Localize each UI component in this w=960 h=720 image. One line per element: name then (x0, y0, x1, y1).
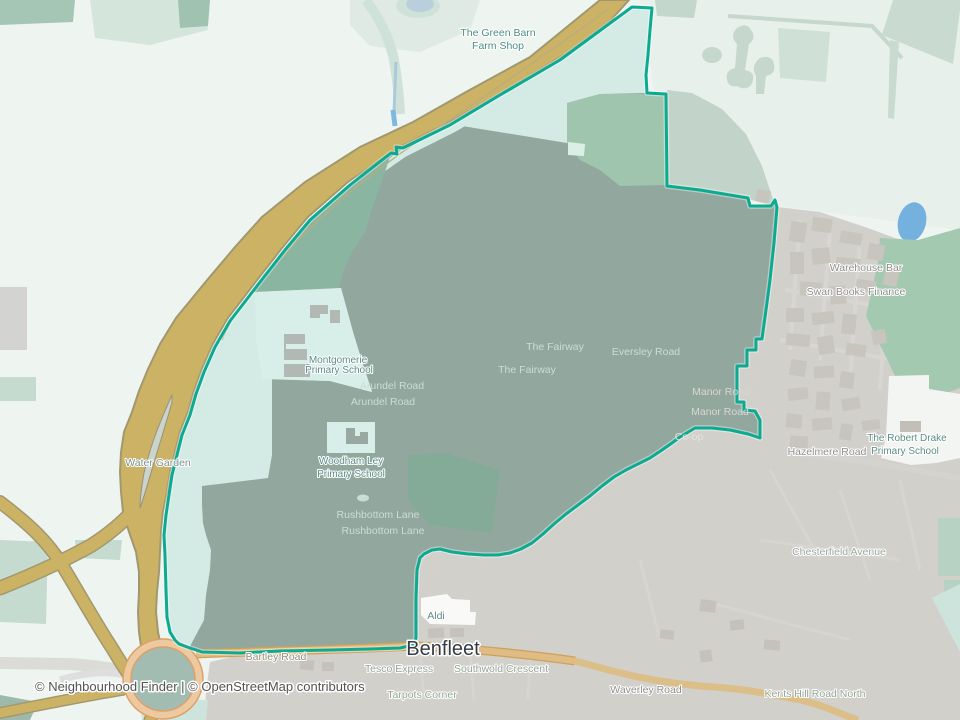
svg-text:Primary School: Primary School (305, 365, 373, 376)
svg-text:Warehouse Bar: Warehouse Bar (830, 262, 903, 274)
svg-text:Woodham Ley: Woodham Ley (319, 456, 383, 467)
svg-text:The Green Barn: The Green Barn (460, 27, 535, 39)
svg-text:Tesco Express: Tesco Express (365, 663, 433, 675)
svg-text:The Fairway: The Fairway (526, 341, 585, 353)
svg-text:Water Garden: Water Garden (125, 457, 191, 469)
svg-text:Farm Shop: Farm Shop (472, 40, 524, 52)
svg-text:Waverley Road: Waverley Road (610, 684, 682, 696)
svg-text:The Fairway: The Fairway (498, 364, 557, 376)
svg-text:© Neighbourhood Finder | © Ope: © Neighbourhood Finder | © OpenStreetMap… (35, 679, 365, 694)
svg-text:Benfleet: Benfleet (406, 638, 480, 660)
svg-text:Arundel Road: Arundel Road (360, 380, 424, 392)
svg-text:Chesterfield Avenue: Chesterfield Avenue (792, 546, 886, 558)
svg-text:Aldi: Aldi (427, 610, 445, 622)
svg-text:Primary School: Primary School (317, 469, 385, 480)
svg-text:Co-op: Co-op (675, 431, 704, 443)
svg-text:Manor Road: Manor Road (692, 386, 750, 398)
svg-text:Southwold Crescent: Southwold Crescent (454, 663, 548, 675)
svg-text:Eversley Road: Eversley Road (612, 346, 680, 358)
svg-text:Manor Road: Manor Road (691, 406, 749, 418)
svg-text:Tarpots Corner: Tarpots Corner (387, 689, 457, 701)
svg-text:Primary School: Primary School (871, 446, 939, 457)
svg-text:Rushbottom Lane: Rushbottom Lane (337, 509, 420, 521)
svg-text:Arundel Road: Arundel Road (351, 396, 415, 408)
svg-text:The Robert Drake: The Robert Drake (867, 433, 947, 444)
svg-text:Swan Books Finance: Swan Books Finance (807, 286, 906, 298)
svg-text:Kents Hill Road North: Kents Hill Road North (765, 688, 866, 700)
svg-text:Bartley Road: Bartley Road (246, 651, 307, 663)
svg-text:Rushbottom Lane: Rushbottom Lane (342, 525, 425, 537)
svg-text:Hazelmere Road: Hazelmere Road (788, 446, 867, 458)
